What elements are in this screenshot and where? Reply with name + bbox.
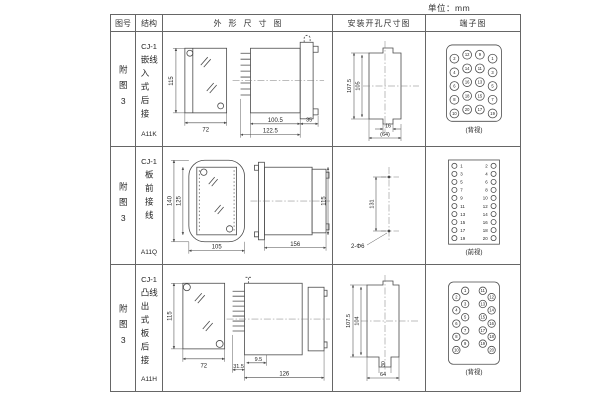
dim-front-height: 115 (169, 75, 175, 85)
dim-body-length: 100.5 (268, 117, 284, 123)
fig-no-label: 附图3 (119, 304, 128, 352)
a11h-install-drawing: 107.5 104 30 64 (333, 269, 425, 387)
svg-text:9: 9 (464, 341, 467, 346)
row2-outline-cell: 140 125 105 156 115 (163, 147, 333, 265)
svg-text:2: 2 (453, 56, 456, 61)
svg-text:13: 13 (460, 211, 465, 216)
dim-cutout-width: (64) (380, 132, 390, 138)
dim-inner-height: 125 (176, 195, 182, 206)
fig-no-label: 附图3 (119, 65, 128, 113)
a11h-side-view (233, 277, 327, 355)
svg-text:10: 10 (483, 195, 488, 200)
svg-text:19: 19 (460, 235, 465, 240)
hole-note-label: 2-Φ6 (351, 244, 365, 250)
svg-text:3: 3 (491, 70, 494, 75)
svg-text:15: 15 (460, 219, 465, 224)
svg-text:5: 5 (464, 315, 467, 320)
a11q-install-dims: 131 2-Φ6 (351, 177, 387, 250)
dim-inner-height: 104 (355, 316, 361, 325)
series-label: CJ-1 (141, 275, 157, 284)
mounting-holes (381, 167, 399, 241)
terminal-pins (450, 50, 497, 118)
terminal-numbers-left: 1 3 5 7 9 11 13 15 17 19 (460, 163, 465, 240)
dim-offset: 9.5 (255, 357, 263, 363)
svg-text:10: 10 (454, 347, 459, 352)
structure-label: 板前接线 (145, 170, 154, 224)
svg-text:16: 16 (465, 80, 470, 85)
row1-outline-cell: 115 72 100.5 35 (163, 32, 333, 147)
a11q-terminal-drawing: 1 3 5 7 9 11 13 15 17 19 2 4 6 8 10 12 1… (426, 154, 520, 258)
svg-text:17: 17 (478, 107, 483, 112)
cutout-outline (367, 281, 399, 367)
svg-text:3: 3 (464, 301, 467, 306)
row3-structure-cell: CJ-1 凸出式板后接线 A11H (136, 265, 163, 392)
svg-text:2: 2 (485, 163, 488, 168)
terminal-numbers-right: 2 4 6 8 10 12 14 16 18 20 (483, 163, 488, 240)
svg-text:20: 20 (489, 347, 494, 352)
svg-text:16: 16 (489, 321, 494, 326)
svg-text:5: 5 (460, 179, 463, 184)
svg-text:4: 4 (453, 70, 456, 75)
dim-front-width: 72 (200, 363, 207, 369)
svg-text:11: 11 (481, 288, 486, 293)
svg-text:4: 4 (485, 171, 488, 176)
svg-text:11: 11 (460, 203, 465, 208)
terminal-view-label: (背视) (465, 125, 482, 134)
row1-install-cell: 107.5 105 16 (64) (333, 32, 426, 147)
svg-text:5: 5 (491, 84, 494, 89)
a11h-front-view (183, 283, 225, 349)
row2-install-cell: 131 2-Φ6 (333, 147, 426, 265)
model-label: A11H (141, 376, 157, 383)
dim-pin-length: 31.5 (233, 364, 244, 370)
svg-text:7: 7 (464, 328, 467, 333)
dim-tab-width: 16 (385, 123, 391, 129)
svg-text:3: 3 (460, 171, 463, 176)
a11k-install-dims: 107.5 105 16 (64) (347, 53, 401, 141)
svg-text:8: 8 (485, 187, 488, 192)
row1-structure-cell: CJ-1 嵌入式后接线 A11K (136, 32, 163, 147)
dim-plate-height: 140 (167, 195, 173, 206)
svg-text:6: 6 (485, 179, 488, 184)
svg-text:1: 1 (491, 56, 494, 61)
svg-text:14: 14 (489, 308, 494, 313)
a11k-front-dims: 115 72 (169, 48, 227, 134)
terminal-view-label: (前视) (465, 246, 482, 255)
a11h-side-dims: 31.5 9.5 126 (233, 335, 324, 381)
series-label: CJ-1 (141, 42, 157, 51)
header-structure: 结构 (136, 15, 163, 32)
a11k-install-drawing: 107.5 105 16 (64) (333, 33, 425, 146)
header-install: 安装开孔尺寸图 (333, 15, 426, 32)
header-terminal: 端子图 (426, 15, 521, 32)
header-fig-no: 图号 (111, 15, 136, 32)
model-label: A11Q (141, 249, 157, 256)
terminal-view-label: (背视) (465, 367, 482, 376)
dim-inner-height: 105 (356, 81, 362, 90)
fig-no-label: 附图3 (119, 182, 128, 230)
row3-outline-cell: 115 72 31.5 9.5 (163, 265, 333, 392)
svg-text:14: 14 (483, 211, 488, 216)
svg-text:6: 6 (455, 321, 458, 326)
svg-text:12: 12 (465, 52, 470, 57)
row2-terminal-cell: 1 3 5 7 9 11 13 15 17 19 2 4 6 8 10 12 1… (426, 147, 521, 265)
dim-slot-width: 30 (381, 361, 387, 367)
structure-label: 嵌入式后接线 (141, 55, 158, 131)
header-outline: 外形尺寸图 (163, 15, 333, 32)
dim-cutout-height: 107.5 (346, 314, 352, 328)
a11q-outline-drawing: 140 125 105 156 115 (163, 150, 332, 262)
unit-label: 单位：mm (428, 2, 470, 14)
svg-text:14: 14 (465, 66, 470, 71)
a11h-outline-drawing: 115 72 31.5 9.5 (163, 269, 332, 387)
structure-label: 凸出式板后接线 (141, 288, 158, 376)
svg-text:11: 11 (478, 66, 483, 71)
dim-body-length: 156 (290, 241, 301, 247)
svg-text:1: 1 (460, 163, 463, 168)
a11k-side-dims: 100.5 35 122.5 (241, 98, 319, 137)
svg-text:20: 20 (483, 235, 488, 240)
dim-body-length: 126 (279, 372, 290, 378)
svg-text:17: 17 (460, 227, 465, 232)
svg-text:20: 20 (465, 107, 470, 112)
row1-fig-no-cell: 附图3 (111, 32, 136, 147)
a11q-install-drawing: 131 2-Φ6 (333, 147, 425, 265)
dim-front-height: 115 (167, 311, 173, 321)
svg-text:12: 12 (483, 203, 488, 208)
a11k-terminal-drawing: 21291 414113 616135 818157 10201719 (背视) (426, 39, 520, 139)
dim-plate-width: 105 (212, 244, 223, 250)
svg-text:6: 6 (453, 84, 456, 89)
svg-text:9: 9 (479, 52, 482, 57)
dim-cutout-width: 64 (380, 372, 386, 378)
model-label: A11K (141, 131, 156, 138)
svg-text:15: 15 (478, 93, 483, 98)
svg-text:17: 17 (481, 328, 486, 333)
row3-install-cell: 107.5 104 30 64 (333, 265, 426, 392)
svg-text:8: 8 (453, 97, 456, 102)
a11k-front-view (185, 48, 227, 113)
svg-text:1: 1 (464, 288, 467, 293)
series-label: CJ-1 (141, 157, 157, 166)
svg-text:13: 13 (478, 80, 483, 85)
row3-terminal-cell: 12 34 56 78 910 1112 1314 1516 1718 1920… (426, 265, 521, 392)
svg-text:4: 4 (455, 308, 458, 313)
a11k-side-view (241, 35, 319, 119)
spec-table: 图号 结构 外形尺寸图 安装开孔尺寸图 端子图 附图3 CJ-1 嵌入式后接线 … (110, 14, 521, 392)
svg-text:9: 9 (460, 195, 463, 200)
a11q-front-view (189, 160, 245, 242)
row2-structure-cell: CJ-1 板前接线 A11Q (136, 147, 163, 265)
svg-text:18: 18 (483, 227, 488, 232)
svg-text:15: 15 (481, 315, 486, 320)
svg-text:19: 19 (490, 111, 495, 116)
svg-text:2: 2 (455, 295, 458, 300)
terminal-pins (452, 163, 496, 240)
dim-cutout-height: 107.5 (347, 79, 353, 93)
svg-text:12: 12 (489, 295, 494, 300)
svg-text:7: 7 (460, 187, 463, 192)
a11h-front-dims: 115 72 (167, 283, 224, 369)
row1-terminal-cell: 21291 414113 616135 818157 10201719 (背视) (426, 32, 521, 147)
svg-text:7: 7 (491, 97, 494, 102)
svg-text:19: 19 (481, 341, 486, 346)
svg-text:8: 8 (455, 334, 458, 339)
row3-fig-no-cell: 附图3 (111, 265, 136, 392)
row2-fig-no-cell: 附图3 (111, 147, 136, 265)
svg-text:16: 16 (483, 219, 488, 224)
a11k-outline-drawing: 115 72 100.5 35 (163, 33, 332, 146)
dim-flange-depth: 35 (306, 117, 312, 123)
a11q-side-dims: 156 115 (264, 167, 328, 251)
svg-text:18: 18 (489, 334, 494, 339)
svg-text:10: 10 (452, 111, 457, 116)
dim-front-width: 72 (202, 127, 209, 133)
svg-text:13: 13 (481, 301, 486, 306)
a11h-terminal-drawing: 12 34 56 78 910 1112 1314 1516 1718 1920… (426, 276, 520, 380)
dim-total-length: 122.5 (263, 128, 279, 134)
dim-hole-spacing: 131 (370, 199, 376, 208)
dim-body-height: 115 (322, 195, 328, 205)
svg-text:18: 18 (465, 93, 470, 98)
